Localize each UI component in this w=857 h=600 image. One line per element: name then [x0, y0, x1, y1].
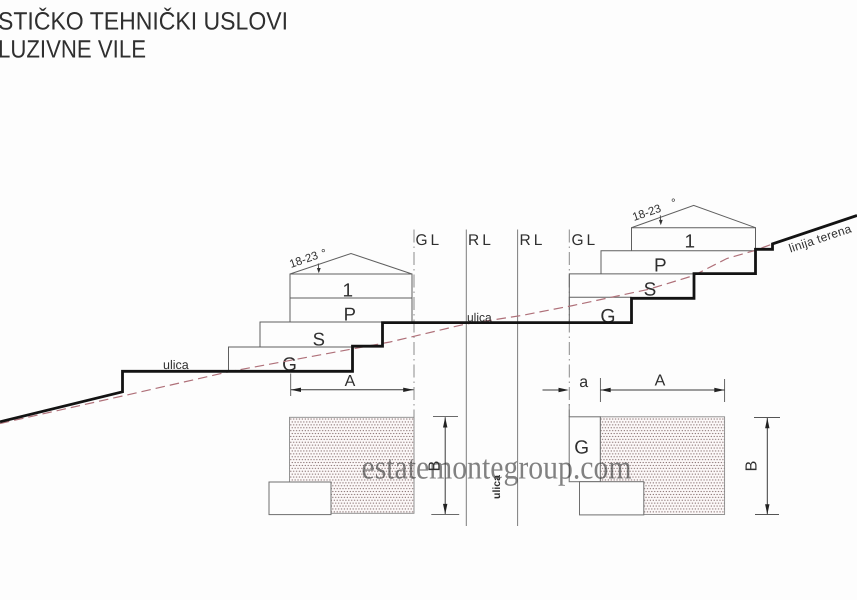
svg-text:ulica: ulica	[163, 358, 189, 372]
svg-text:estatemontegroup.com: estatemontegroup.com	[362, 450, 632, 487]
svg-text:RL: RL	[520, 232, 546, 249]
svg-text:LUZIVNE VILE: LUZIVNE VILE	[0, 36, 146, 64]
svg-text:1: 1	[685, 231, 696, 252]
svg-text:A: A	[345, 373, 356, 390]
svg-text:STIČKO TEHNIČKI USLOVI: STIČKO TEHNIČKI USLOVI	[0, 8, 288, 36]
svg-text:GL: GL	[416, 232, 443, 249]
svg-text:°: °	[671, 198, 676, 210]
svg-text:°: °	[321, 248, 326, 260]
svg-text:P: P	[654, 256, 667, 277]
svg-text:ulica: ulica	[467, 310, 492, 324]
svg-text:1: 1	[343, 281, 354, 302]
svg-text:a: a	[579, 374, 588, 391]
svg-text:A: A	[655, 373, 666, 390]
svg-text:RL: RL	[468, 232, 494, 249]
svg-text:S: S	[313, 328, 325, 349]
svg-text:B: B	[744, 461, 761, 472]
svg-text:P: P	[344, 303, 356, 324]
svg-text:GL: GL	[572, 232, 599, 249]
